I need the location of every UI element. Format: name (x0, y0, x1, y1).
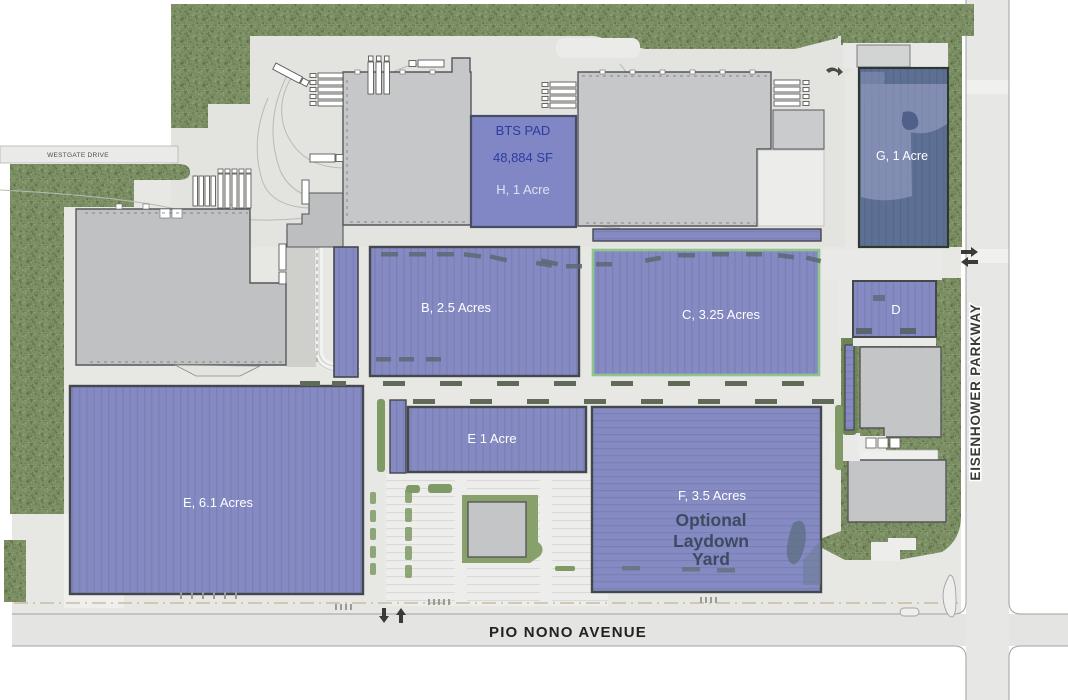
svg-text:Laydown: Laydown (673, 531, 749, 551)
svg-text:F, 3.5 Acres: F, 3.5 Acres (678, 488, 746, 503)
svg-text:D: D (891, 302, 900, 317)
svg-text:E, 6.1 Acres: E, 6.1 Acres (183, 495, 254, 510)
svg-text:H, 1 Acre: H, 1 Acre (496, 182, 549, 197)
svg-text:BTS PAD: BTS PAD (496, 123, 551, 138)
svg-text:48,884 SF: 48,884 SF (493, 150, 553, 165)
svg-text:B, 2.5 Acres: B, 2.5 Acres (421, 300, 492, 315)
svg-text:PIO NONO AVENUE: PIO NONO AVENUE (489, 624, 647, 641)
svg-text:WESTGATE DRIVE: WESTGATE DRIVE (47, 152, 109, 159)
svg-text:Yard: Yard (692, 549, 730, 569)
svg-text:Optional: Optional (676, 510, 747, 530)
svg-text:C, 3.25 Acres: C, 3.25 Acres (682, 307, 761, 322)
svg-text:G, 1 Acre: G, 1 Acre (876, 149, 928, 163)
svg-text:EISENHOWER PARKWAY: EISENHOWER PARKWAY (968, 303, 983, 480)
svg-text:E 1 Acre: E 1 Acre (467, 431, 516, 446)
